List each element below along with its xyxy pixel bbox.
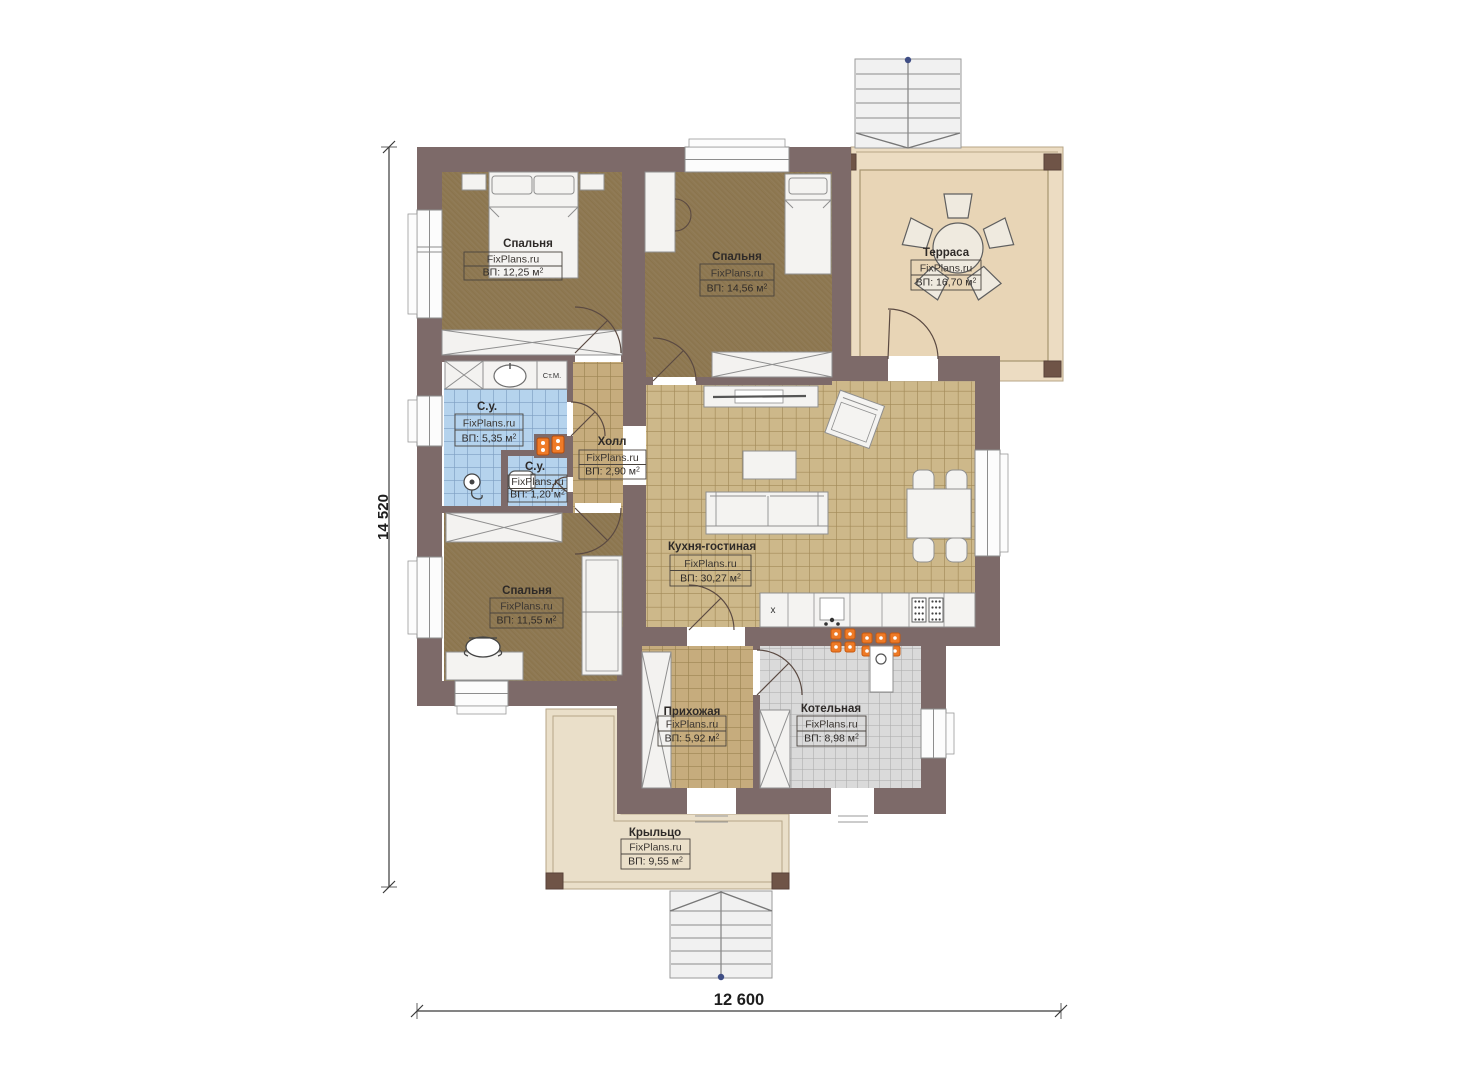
svg-text:12 600: 12 600	[714, 991, 764, 1009]
svg-text:FixPlans.ru: FixPlans.ru	[511, 476, 564, 488]
svg-text:ВП: 14,56 м2: ВП: 14,56 м2	[707, 283, 768, 295]
svg-text:Спальня: Спальня	[712, 251, 762, 263]
svg-text:FixPlans.ru: FixPlans.ru	[711, 268, 764, 280]
svg-text:С.у.: С.у.	[525, 461, 545, 473]
svg-text:FixPlans.ru: FixPlans.ru	[586, 452, 639, 464]
svg-text:Ст.М.: Ст.М.	[543, 371, 561, 380]
svg-text:ВП: 12,25 м2: ВП: 12,25 м2	[483, 267, 544, 279]
svg-text:ВП: 1,20 м2: ВП: 1,20 м2	[510, 489, 565, 501]
svg-text:Крыльцо: Крыльцо	[629, 827, 681, 839]
svg-text:x: x	[771, 605, 776, 616]
svg-text:ВП: 30,27 м2: ВП: 30,27 м2	[680, 573, 741, 585]
svg-text:ВП: 9,55 м2: ВП: 9,55 м2	[628, 856, 683, 868]
svg-text:FixPlans.ru: FixPlans.ru	[500, 601, 553, 613]
svg-text:FixPlans.ru: FixPlans.ru	[629, 842, 682, 854]
svg-text:FixPlans.ru: FixPlans.ru	[805, 719, 858, 731]
svg-text:Терраса: Терраса	[923, 247, 970, 259]
svg-text:FixPlans.ru: FixPlans.ru	[666, 719, 719, 731]
svg-text:Холл: Холл	[598, 436, 627, 448]
svg-text:FixPlans.ru: FixPlans.ru	[487, 254, 540, 266]
svg-text:FixPlans.ru: FixPlans.ru	[920, 263, 973, 275]
svg-text:Спальня: Спальня	[503, 238, 553, 250]
svg-text:Котельная: Котельная	[801, 703, 861, 715]
svg-text:ВП: 5,92 м2: ВП: 5,92 м2	[665, 733, 720, 745]
svg-text:FixPlans.ru: FixPlans.ru	[463, 418, 516, 430]
svg-text:14 520: 14 520	[375, 494, 392, 540]
svg-text:Спальня: Спальня	[502, 585, 552, 597]
svg-text:ВП: 8,98 м2: ВП: 8,98 м2	[804, 733, 859, 745]
svg-text:С.у.: С.у.	[477, 401, 497, 413]
svg-text:ВП: 16,70 м2: ВП: 16,70 м2	[916, 277, 977, 289]
svg-text:Кухня-гостиная: Кухня-гостиная	[668, 541, 756, 553]
svg-text:ВП: 11,55 м2: ВП: 11,55 м2	[497, 615, 557, 627]
svg-text:ВП: 5,35 м2: ВП: 5,35 м2	[462, 433, 517, 445]
svg-text:FixPlans.ru: FixPlans.ru	[684, 558, 737, 570]
svg-text:ВП: 2,90 м2: ВП: 2,90 м2	[585, 466, 640, 478]
